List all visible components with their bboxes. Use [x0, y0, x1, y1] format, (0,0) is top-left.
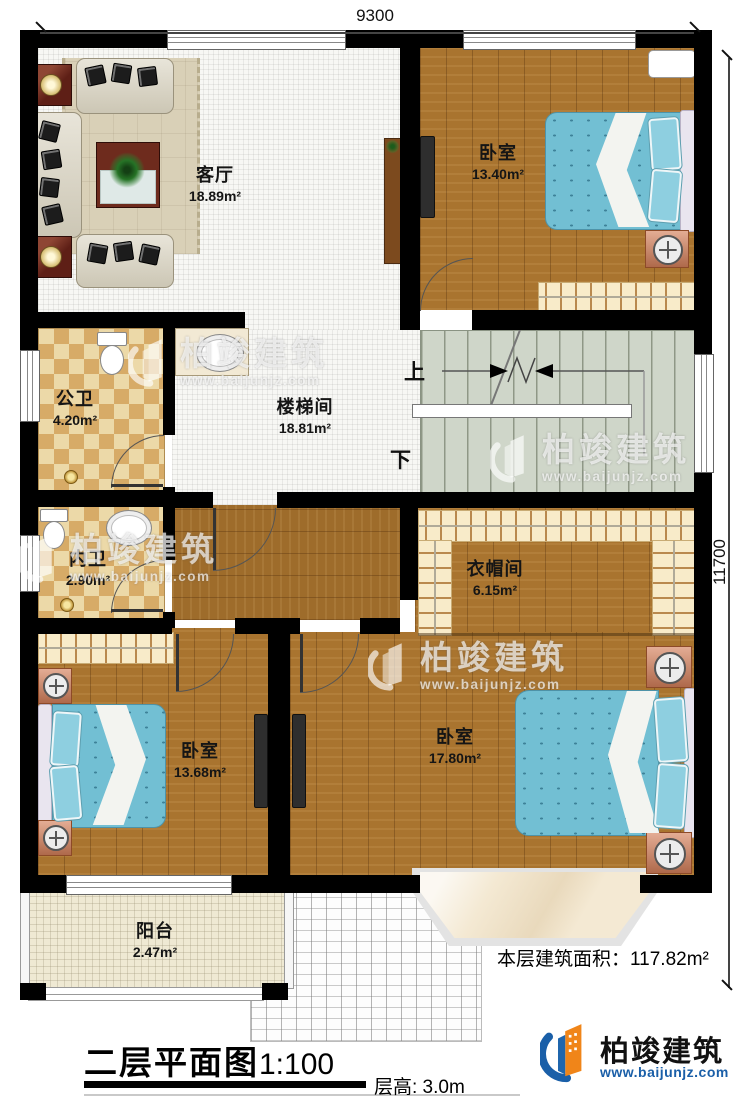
floor-plan-page: 上 下 — [0, 0, 750, 1103]
wall-left-1 — [20, 30, 38, 350]
cloakroom-wardrobe-top — [418, 510, 696, 542]
wall-bedrooms-north-c — [360, 618, 400, 634]
room-label-balcony: 阳台 2.47m² — [95, 920, 215, 962]
wall-publicbath-east-a — [163, 328, 175, 435]
sofa-pillow — [113, 241, 134, 262]
toilet-icon — [97, 332, 127, 346]
room-label-bedroom-left: 卧室 13.68m² — [140, 740, 260, 782]
wall-bedrooms-divider — [268, 634, 290, 875]
dimension-tick — [721, 49, 732, 60]
plan-title: 二层平面图1:100 — [84, 1036, 334, 1084]
bed-left-pillow — [50, 765, 83, 821]
basin-icon — [106, 510, 152, 546]
room-area: 18.81m² — [240, 419, 370, 437]
bed-left-pillow — [50, 711, 82, 767]
room-name: 阳台 — [95, 920, 215, 943]
floor-height-note: 层高: 3.0m — [374, 1072, 465, 1099]
sofa-pillow — [39, 177, 60, 198]
room-area: 17.80m² — [395, 749, 515, 767]
wall-bedrooms-north-b — [235, 618, 300, 634]
room-name: 公卫 — [15, 388, 135, 411]
lamp-icon — [43, 825, 69, 851]
basin-icon — [196, 334, 244, 372]
room-area: 2.47m² — [95, 943, 215, 961]
floor-area-label: 本层建筑面积： — [497, 949, 630, 970]
room-name: 卧室 — [140, 740, 260, 763]
wall-stairs-south — [400, 492, 694, 508]
room-name: 客厅 — [155, 164, 275, 187]
toilet-bowl — [100, 345, 124, 375]
window-bedroom-left-bottom — [66, 875, 232, 895]
brand-logo-icon — [540, 1018, 594, 1086]
plant-icon — [109, 152, 145, 188]
dimension-tick — [721, 979, 732, 990]
room-area: 6.15m² — [435, 581, 555, 599]
tv-icon — [292, 714, 306, 808]
lamp-icon — [654, 652, 686, 684]
wall-living-south — [20, 312, 245, 328]
room-label-living: 客厅 18.89m² — [155, 164, 275, 206]
lamp-icon — [43, 673, 69, 699]
sofa-pillow — [84, 64, 107, 87]
wardrobe-bedroom-top — [538, 282, 696, 312]
bed-right-pillow — [654, 763, 688, 829]
room-area: 18.89m² — [155, 187, 275, 205]
wall-bedroom-top-south-a — [400, 310, 420, 330]
wall-left-3 — [20, 590, 38, 890]
sofa-pillow — [41, 149, 63, 171]
sofa-pillow — [111, 63, 133, 85]
room-name: 内卫 — [28, 548, 148, 571]
balcony-rail-bottom — [28, 987, 264, 1001]
bay-window-sill — [420, 872, 650, 938]
title-underline — [84, 1081, 366, 1088]
cloakroom-wardrobe-right — [652, 540, 696, 636]
wall-bedroom-top-south-b — [472, 310, 694, 330]
floor-area-note: 本层建筑面积：117.82m² — [497, 944, 709, 971]
balcony-rail-right — [284, 891, 294, 989]
wall-corridor-north-b — [277, 492, 400, 508]
floor-drain-icon — [64, 470, 78, 484]
room-area: 13.40m² — [438, 165, 558, 183]
door-leaf-corridor — [213, 508, 216, 570]
room-area: 2.90m² — [28, 571, 148, 589]
room-label-stairwell: 楼梯间 18.81m² — [240, 396, 370, 438]
lamp-icon — [654, 838, 686, 870]
room-area: 4.20m² — [15, 411, 135, 429]
wall-bedrooms-north-a — [38, 618, 172, 634]
room-label-bedroom-right: 卧室 17.80m² — [395, 726, 515, 768]
dresser — [648, 50, 696, 78]
plant-icon — [386, 140, 399, 153]
tv-icon — [420, 136, 435, 218]
room-area: 13.68m² — [140, 763, 260, 781]
wall-right-1 — [694, 30, 712, 354]
lamp-icon — [40, 74, 62, 96]
dimension-right: 11700 — [710, 524, 730, 600]
balcony-rail-left — [20, 891, 30, 989]
sofa-pillow — [138, 243, 161, 266]
plan-title-text: 二层平面图 — [84, 1044, 259, 1081]
cloak-bedroom-boundary — [418, 633, 694, 636]
wardrobe-bedroom-left — [38, 632, 174, 664]
room-name: 卧室 — [438, 142, 558, 165]
window-stairs-right — [694, 354, 714, 473]
door-leaf-public-bath — [111, 484, 163, 487]
dimension-top-line — [40, 32, 694, 34]
room-name: 楼梯间 — [240, 396, 370, 419]
wall-bottom-1 — [20, 875, 66, 893]
bed-right-pillow — [654, 697, 688, 763]
bed-top-pillow — [648, 169, 682, 223]
brand-url: www.baijunjz.com — [600, 1064, 729, 1080]
lamp-icon — [653, 235, 683, 265]
floor-area-value: 117.82m² — [630, 949, 709, 970]
stairs-up-label: 上 — [404, 356, 425, 386]
lamp-icon — [40, 246, 62, 268]
dimension-right-line — [728, 58, 730, 988]
toilet-bowl — [43, 521, 65, 549]
room-name: 卧室 — [395, 726, 515, 749]
wall-left-2 — [20, 420, 38, 535]
door-leaf-bedroom-right — [300, 634, 303, 692]
door-leaf-ensuite — [111, 609, 163, 612]
wall-bottom-3 — [310, 875, 420, 893]
room-name: 衣帽间 — [435, 558, 555, 581]
wall-corridor-north-a — [172, 492, 213, 508]
door-leaf-bedroom-left — [176, 634, 179, 691]
wall-corridor-cloak — [400, 508, 418, 600]
sofa-pillow — [137, 66, 158, 87]
wall-bottom-2 — [230, 875, 310, 893]
room-label-public-bath: 公卫 4.20m² — [15, 388, 135, 430]
bed-top-pillow — [648, 117, 682, 171]
wall-bottom-4 — [640, 875, 712, 893]
stairs-handrail — [412, 404, 632, 418]
balcony-post-right — [262, 983, 288, 1000]
floor-drain-icon — [60, 598, 74, 612]
wall-bath-divider — [20, 490, 175, 507]
stairs-direction-arrow — [432, 328, 648, 460]
corridor-floor — [172, 505, 400, 620]
wall-ensuite-east-a — [163, 507, 175, 560]
wall-living-bedroom — [400, 30, 420, 310]
room-label-cloakroom: 衣帽间 6.15m² — [435, 558, 555, 600]
bed-left-headboard — [38, 704, 52, 828]
stairs-down-label: 下 — [390, 444, 411, 474]
dimension-top: 9300 — [320, 6, 430, 26]
room-label-bedroom-top: 卧室 13.40m² — [438, 142, 558, 184]
plan-scale: 1:100 — [259, 1048, 334, 1081]
room-label-ensuite-bath: 内卫 2.90m² — [28, 548, 148, 590]
balcony-post-left — [20, 983, 46, 1000]
sofa-pillow — [86, 242, 108, 264]
